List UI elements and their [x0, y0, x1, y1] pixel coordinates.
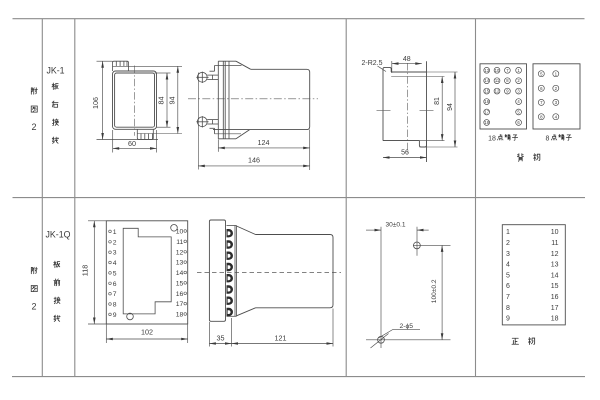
svg-text:2: 2 [113, 239, 117, 246]
svg-text:6: 6 [113, 281, 117, 288]
svg-text:10: 10 [495, 68, 500, 73]
svg-text:5: 5 [506, 272, 510, 279]
svg-text:9: 9 [506, 316, 510, 323]
svg-text:48: 48 [403, 56, 411, 63]
svg-text:8: 8 [506, 305, 510, 312]
svg-text:18: 18 [176, 312, 184, 319]
svg-text:10: 10 [176, 229, 184, 236]
svg-text:2: 2 [506, 240, 510, 247]
svg-text:18: 18 [484, 120, 489, 125]
svg-text:8: 8 [113, 302, 117, 309]
svg-text:12: 12 [551, 251, 559, 258]
svg-text:94: 94 [167, 97, 176, 105]
svg-text:10: 10 [551, 229, 559, 236]
svg-text:16: 16 [176, 291, 184, 298]
svg-text:11: 11 [495, 78, 500, 83]
svg-text:17: 17 [551, 305, 559, 312]
svg-text:JK-1Q: JK-1Q [46, 229, 71, 239]
svg-text:4: 4 [506, 262, 510, 269]
svg-text:146: 146 [248, 156, 260, 165]
svg-text:102: 102 [141, 328, 153, 337]
svg-text:13: 13 [551, 262, 559, 269]
svg-text:118: 118 [81, 265, 90, 276]
svg-text:15: 15 [176, 280, 184, 287]
svg-text:16: 16 [551, 294, 559, 301]
svg-text:18: 18 [551, 316, 559, 323]
svg-text:30±0.1: 30±0.1 [385, 221, 405, 228]
svg-text:35: 35 [217, 334, 225, 343]
svg-text:84: 84 [157, 97, 166, 105]
svg-text:15: 15 [551, 283, 559, 290]
svg-text:14: 14 [176, 270, 184, 277]
svg-text:3: 3 [506, 251, 510, 258]
svg-text:11: 11 [176, 239, 183, 246]
svg-text:1: 1 [506, 229, 510, 236]
svg-text:12: 12 [176, 249, 184, 256]
svg-text:94: 94 [447, 103, 454, 111]
svg-text:106: 106 [91, 97, 100, 109]
svg-text:17: 17 [484, 110, 489, 115]
svg-text:9: 9 [113, 312, 117, 319]
svg-text:5: 5 [113, 270, 117, 277]
svg-text:60: 60 [128, 139, 136, 148]
svg-text:4: 4 [113, 260, 117, 267]
svg-text:81: 81 [434, 97, 441, 105]
svg-text:2: 2 [31, 302, 36, 312]
svg-text:15: 15 [484, 89, 489, 94]
svg-text:121: 121 [275, 334, 287, 343]
svg-text:56: 56 [401, 150, 409, 157]
svg-text:2: 2 [31, 122, 36, 132]
svg-text:100±0.2: 100±0.2 [431, 279, 438, 303]
svg-text:7: 7 [506, 294, 510, 301]
svg-text:JK-1: JK-1 [46, 66, 64, 76]
svg-text:14: 14 [551, 272, 559, 279]
svg-text:1: 1 [113, 229, 117, 236]
svg-text:13: 13 [176, 260, 184, 267]
svg-text:13: 13 [484, 68, 489, 73]
svg-text:11: 11 [551, 240, 558, 247]
svg-text:12: 12 [495, 89, 500, 94]
svg-text:17: 17 [176, 301, 184, 308]
svg-text:124: 124 [258, 138, 270, 147]
svg-text:18: 18 [488, 136, 496, 143]
svg-text:7: 7 [113, 291, 117, 298]
svg-text:2-R2.5: 2-R2.5 [361, 60, 382, 67]
svg-text:3: 3 [113, 250, 117, 257]
svg-text:14: 14 [484, 78, 489, 83]
svg-text:16: 16 [484, 99, 489, 104]
svg-text:6: 6 [506, 283, 510, 290]
svg-text:8: 8 [546, 136, 550, 143]
